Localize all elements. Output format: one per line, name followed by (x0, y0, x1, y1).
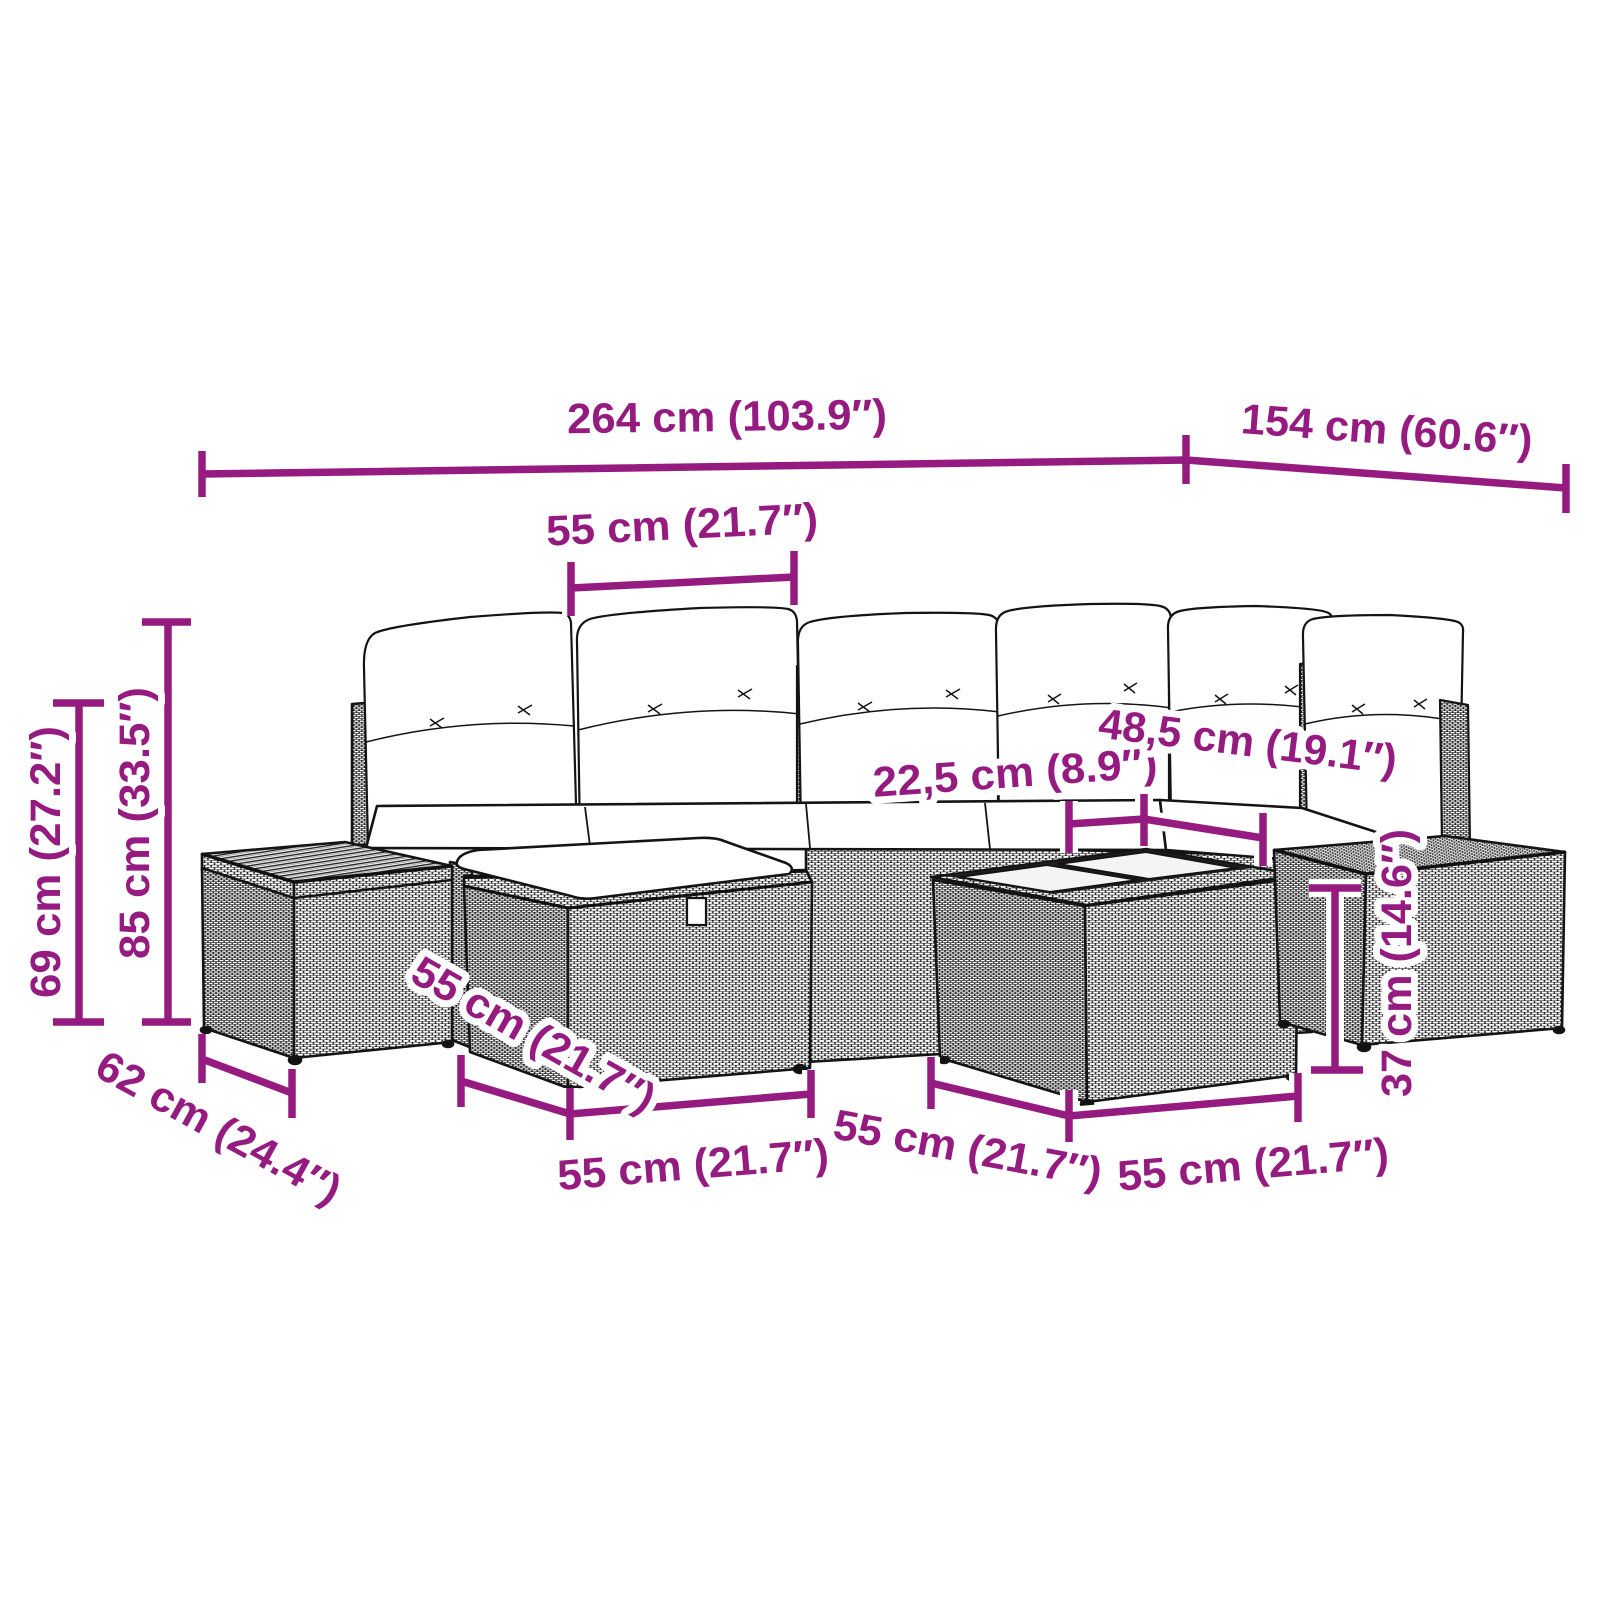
svg-text:264 cm (103.9″): 264 cm (103.9″) (567, 392, 888, 443)
svg-text:37 cm (14.6″): 37 cm (14.6″) (1374, 829, 1421, 1097)
svg-text:85 cm (33.5″): 85 cm (33.5″) (112, 687, 159, 959)
svg-text:69 cm (27.2″): 69 cm (27.2″) (23, 726, 70, 998)
